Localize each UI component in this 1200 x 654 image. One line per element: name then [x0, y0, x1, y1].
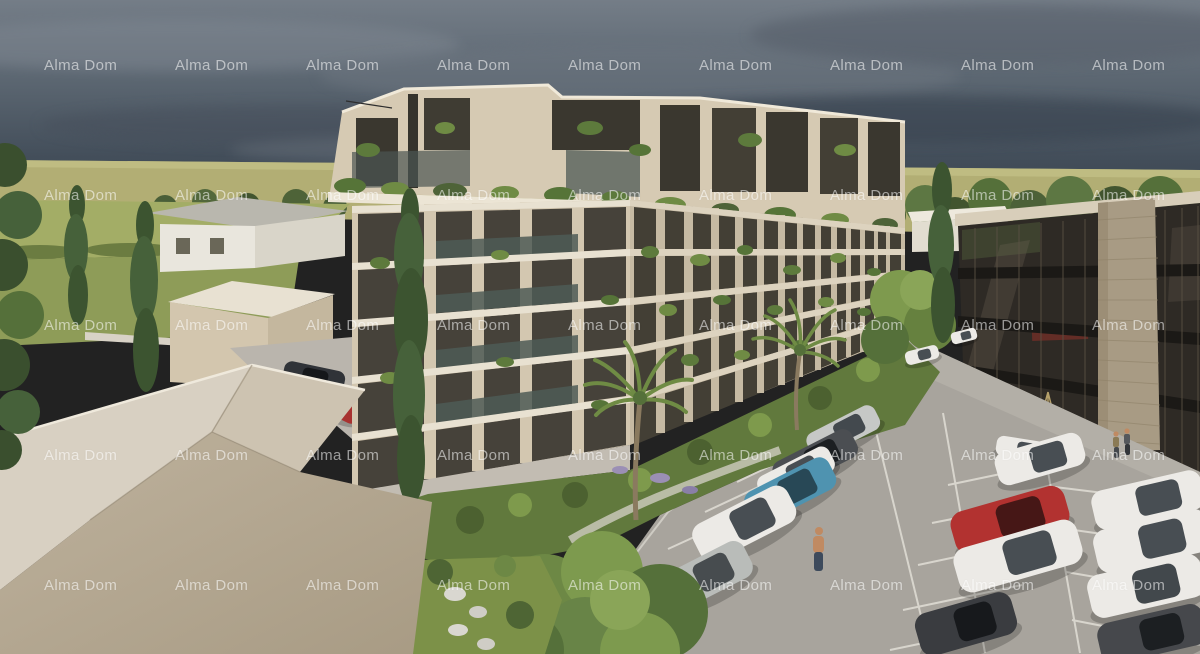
- scene-canvas: [0, 0, 1200, 654]
- facade-left: [352, 200, 630, 492]
- render-screenshot: Alma DomAlma DomAlma DomAlma DomAlma Dom…: [0, 0, 1200, 654]
- cypress-by-office: [928, 162, 955, 343]
- stone-column: [1098, 198, 1160, 452]
- bottom-left-garden: [410, 555, 562, 654]
